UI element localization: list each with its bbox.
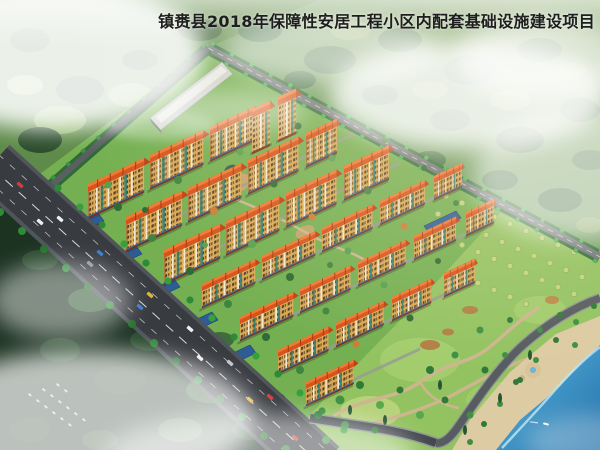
project-title: 镇赉县2018年保障性安居工程小区内配套基础设施建设项目 [158,8,595,32]
rendering-image: 镇赉县2018年保障性安居工程小区内配套基础设施建设项目 [0,0,600,450]
rendering-canvas [0,0,600,450]
